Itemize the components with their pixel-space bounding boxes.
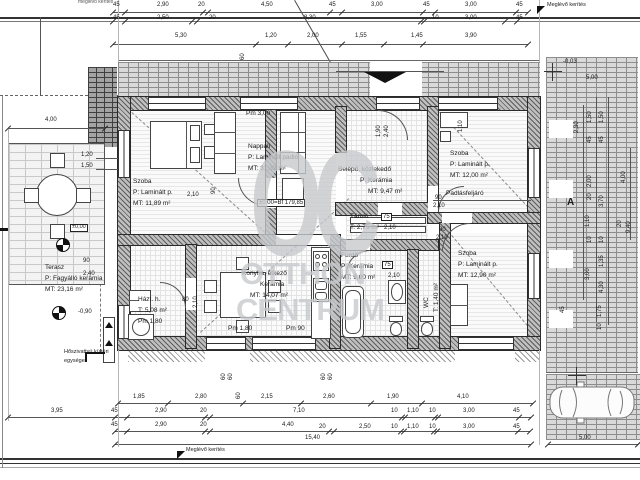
dim-line — [8, 128, 105, 129]
room-floor: P: Kerámia — [341, 261, 375, 272]
entrance-arrow-icon — [364, 72, 406, 83]
dim-line — [115, 431, 530, 432]
dim-label: 1,50 — [81, 163, 93, 169]
room-name: Szoba — [458, 248, 498, 259]
dim-label: 20 — [617, 220, 623, 227]
dim-label: 4,00 — [621, 171, 627, 183]
dim-label: 10 — [429, 424, 436, 430]
dim-label: 90 — [435, 195, 442, 201]
paving-gap — [549, 120, 573, 138]
driveway-edge-line — [546, 372, 638, 373]
survey-cross-icon — [552, 63, 553, 81]
room-label-konyha: Konyha, étkező Kerámia MT: 14,07 m² — [242, 268, 288, 301]
room-label-szoba-b: Szoba P: Laminált p. MT: 12,00 m² — [450, 148, 490, 181]
room-area: MT: 12,90 m² — [458, 270, 498, 281]
dim-label: 60 — [328, 373, 334, 380]
paving-gap — [549, 250, 573, 268]
dim-line — [608, 97, 609, 325]
room-height-nappali: Pm 3,00 — [246, 108, 270, 119]
wall-konyha-furdo — [330, 240, 340, 348]
dim-label: 2,10 — [388, 273, 400, 279]
nightstand — [440, 131, 451, 142]
dim-label: 45 — [560, 306, 566, 313]
chair — [268, 300, 281, 313]
wall-furdo-wc — [408, 250, 418, 348]
section-marker-a: A — [567, 198, 574, 208]
dim-label: 45 — [113, 15, 120, 21]
dim-label: 1,10 — [407, 424, 419, 430]
room-floor: P: Kerámia — [338, 175, 402, 186]
sink-basin — [315, 281, 327, 290]
window-szoba-c-bottom — [458, 337, 514, 350]
fence-top-line — [0, 17, 640, 19]
room-label-tarolo: Tároló T: 2,75 m² — [350, 211, 379, 233]
dim-label: 5,00 — [579, 435, 591, 441]
dim-line — [8, 417, 531, 418]
dim-label: 20 — [200, 408, 207, 414]
dim-label: 4,00 — [45, 117, 57, 123]
dim-label: 10 — [391, 424, 398, 430]
dim-tick — [530, 400, 536, 406]
walkway-gap — [205, 350, 250, 362]
stove-burner — [315, 262, 320, 267]
level-zero-bf-box: ±0,00=Bf 179,85 — [257, 199, 305, 207]
dim-label: 8,30 — [304, 15, 316, 21]
room-name: Tároló — [350, 211, 379, 222]
dim-label: 45 — [599, 136, 605, 143]
dim-label: 45 — [111, 422, 118, 428]
room-height2-konyha: Pm 90 — [286, 323, 305, 334]
dim-label: 10 — [432, 15, 439, 21]
dim-label: 4,10 — [457, 394, 469, 400]
dim-line — [96, 169, 118, 170]
walkway-gap — [455, 350, 515, 362]
dim-line — [113, 44, 528, 45]
dim-line — [583, 105, 584, 300]
level-terrace: -0,90 — [78, 309, 92, 315]
dim-line — [118, 403, 533, 404]
dim-label: 9,40 — [626, 221, 632, 233]
leader-line — [433, 200, 531, 201]
dim-label: 4,50 — [261, 2, 273, 8]
guide-line — [40, 17, 41, 96]
dim-label: 60 — [221, 373, 227, 380]
dim-tick — [525, 9, 531, 15]
fence-bottom-line-2 — [0, 463, 640, 464]
wardrobe-szoba-a — [214, 112, 236, 174]
dim-label: 45 — [513, 408, 520, 414]
dim-tick — [527, 428, 533, 434]
terrace-chair — [50, 224, 65, 239]
dim-label: 3,00 — [465, 15, 477, 21]
dim-label: 60 — [236, 392, 242, 399]
dim-label: 3,00 — [463, 424, 475, 430]
room-label-furdo: Fürdő P: Kerámia MT: 9,00 m² — [341, 250, 375, 283]
terrace-chair — [50, 153, 65, 168]
washbasin-bowl — [391, 283, 403, 301]
guide-line — [8, 128, 9, 421]
room-area: MT: 9,00 m² — [341, 272, 375, 283]
door-gap — [442, 213, 472, 223]
room-floor: P: Laminált p. — [450, 159, 490, 170]
room-height: Pm 1,80 — [138, 316, 167, 327]
dim-label: 1,20 — [265, 33, 277, 39]
dim-label: 2,10 — [436, 235, 448, 241]
dim-label: 2,60 — [323, 394, 335, 400]
dim-label: 1,10 — [585, 215, 591, 227]
wardrobe-line — [450, 305, 468, 306]
survey-cross-icon — [544, 71, 562, 72]
dim-label: 2,10 — [193, 296, 199, 308]
room-name: Belépő, közlekedő — [338, 164, 402, 175]
room-height-konyha: Pm 1,80 — [228, 323, 252, 334]
dim-label: 1,35 — [599, 255, 605, 267]
chair — [204, 280, 217, 293]
window-szoba-c-right — [528, 253, 540, 299]
dim-label: 10 — [587, 236, 593, 243]
terrace-door-bottom — [252, 337, 316, 350]
dim-label: 45 — [423, 2, 430, 8]
pillow — [190, 125, 200, 141]
fence-top-line-2 — [0, 21, 640, 22]
dim-label: 2,90 — [155, 422, 167, 428]
dim-label: 1,90 — [387, 394, 399, 400]
dim-line — [113, 12, 528, 13]
attic-access-label: Padlásfeljáró — [446, 188, 484, 199]
dim-label: 1,20 — [81, 152, 93, 158]
dim-label: 2,00 — [307, 33, 319, 39]
room-name: Fürdő — [341, 250, 375, 261]
fence-flag-bottom-icon — [177, 451, 185, 459]
room-floor: P: Laminált padló — [248, 152, 298, 163]
dim-label: 3,95 — [51, 408, 63, 414]
toilet-bowl — [421, 322, 433, 336]
pillow — [190, 147, 200, 163]
room-area-wc: T: 1,40 m² — [431, 283, 442, 312]
dim-label: 20 — [200, 422, 207, 428]
passage-gap — [276, 235, 330, 245]
window-szoba-b-top — [438, 97, 498, 110]
room-floor: P: Fagyálló kerámia — [45, 273, 102, 284]
guide-line — [118, 0, 119, 62]
dim-label: 5,00 — [586, 75, 598, 81]
room-area: T: 5,08 m² — [138, 305, 167, 316]
room-floor: Kerámia — [242, 279, 288, 290]
dim-label: 2,50 — [359, 424, 371, 430]
fence-flag-top-icon — [537, 6, 545, 14]
room-label-nappali: Nappali P: Laminált padló MT: 31,32 m² — [248, 141, 298, 174]
room-floor: P: Laminált p. — [458, 259, 498, 270]
room-name: Szoba — [133, 176, 173, 187]
chimney — [88, 67, 117, 147]
dim-label: 3,00 — [585, 268, 591, 280]
wall-outer-right — [528, 97, 540, 350]
floor-plan-canvas: Szoba P: Laminált p. MT: 11,89 m² Nappal… — [0, 0, 640, 480]
dim-label: 3,00 — [371, 2, 383, 8]
room-label-hazt: Házt. h. T: 5,08 m² Pm 1,80 — [138, 294, 167, 327]
room-area: MT: 12,00 m² — [450, 170, 490, 181]
dim-label: 10 — [599, 236, 605, 243]
room-label-belepo: Belépő, közlekedő P: Kerámia MT: 9,47 m² — [338, 164, 402, 197]
survey-cross-icon — [568, 375, 586, 376]
dim-label: 20 — [587, 193, 593, 200]
dim-label: 10 — [597, 323, 603, 330]
dim-label: 3,70 — [599, 195, 605, 207]
dim-label: 75 — [382, 261, 393, 269]
room-area: T: 2,75 m² — [350, 222, 379, 233]
dim-label: 10 — [429, 408, 436, 414]
stove-burner — [322, 254, 327, 259]
window-szoba-b-right — [528, 148, 540, 198]
dim-label: 1,10 — [458, 120, 464, 132]
dim-label: 10 — [391, 408, 398, 414]
dim-label: 2,40 — [384, 125, 390, 137]
entrance-door — [376, 97, 420, 110]
level-site: -0,03 — [563, 59, 577, 65]
toilet-bowl — [390, 322, 402, 336]
stove-burner — [315, 254, 320, 259]
dim-label: 1,55 — [355, 33, 367, 39]
dim-label: 1,50 — [599, 111, 605, 123]
dim-label: 4,40 — [282, 422, 294, 428]
level-zero-box: ±0,00 — [70, 224, 88, 232]
dim-label: 1,85 — [133, 394, 145, 400]
dim-label: 45 — [113, 2, 120, 8]
dim-label: 2,90 — [155, 408, 167, 414]
room-area: MT: 31,32 m² — [248, 163, 298, 174]
dim-label: 3,90 — [465, 33, 477, 39]
dim-label: 90 — [211, 187, 217, 194]
dim-label: 2,80 — [195, 394, 207, 400]
dim-label: 2,50 — [157, 15, 169, 21]
dim-label: 2,15 — [261, 394, 273, 400]
wardrobe-line — [214, 132, 236, 133]
porch-edge-line — [118, 60, 540, 61]
fence-label-top: Meglévő kerítés — [547, 3, 586, 9]
heat-pump-label-line1: Hőszivattyú kültéri — [64, 348, 109, 357]
dim-label: 2,90 — [157, 2, 169, 8]
dim-label: 5,30 — [175, 33, 187, 39]
dim-label: 20 — [209, 15, 216, 21]
fence-bottom-line-3 — [0, 467, 640, 468]
terrace-chair — [24, 188, 39, 203]
chair — [204, 300, 217, 313]
room-floor: P: Laminált p. — [133, 187, 173, 198]
dim-label: 1,10 — [407, 408, 419, 414]
room-area: MT: 14,07 m² — [242, 290, 288, 301]
window-konyha-bottom — [206, 337, 246, 350]
dim-label: 2,10 — [187, 192, 199, 198]
dim-label: 90 — [439, 227, 446, 233]
heat-pump-fan-icon — [105, 322, 113, 328]
heat-pump-label-line2: egysége — [64, 357, 109, 366]
fence-bottom-line — [0, 458, 640, 460]
car — [547, 377, 637, 427]
guide-line — [539, 350, 540, 445]
dim-label: 1,75 — [597, 305, 603, 317]
dim-label: 2,10 — [433, 203, 445, 209]
dim-label: 2,10 — [384, 225, 396, 231]
room-label-terasz: Terasz P: Fagyálló kerámia MT: 23,16 m² — [45, 262, 102, 295]
dim-label: 20 — [198, 2, 205, 8]
dim-label: 80 — [182, 297, 189, 303]
benchmark-icon — [56, 238, 70, 252]
sofa-line — [280, 132, 306, 133]
dim-label: 45 — [587, 136, 593, 143]
front-porch-paving — [118, 62, 540, 97]
terrace-table — [36, 174, 78, 216]
survey-cross-icon — [576, 367, 577, 385]
stove-burner — [322, 262, 327, 267]
window-szoba-a-left — [118, 130, 130, 178]
dim-label: 60 — [228, 373, 234, 380]
dim-label: 2,00 — [587, 175, 593, 187]
guide-line — [118, 350, 119, 447]
dim-label: 45 — [513, 424, 520, 430]
dim-label: 2,30 — [574, 121, 580, 133]
wall-nappali-belepo — [336, 107, 346, 152]
window-szoba-a-top — [148, 97, 206, 110]
room-name: Konyha, étkező — [242, 268, 288, 279]
dim-label: 4,30 — [599, 281, 605, 293]
sink-basin — [315, 292, 327, 300]
dim-tick — [635, 441, 640, 447]
room-name: Nappali — [248, 141, 298, 152]
dim-line — [548, 444, 638, 445]
bed-line — [186, 122, 187, 168]
door-gap — [346, 240, 370, 250]
dim-label: 1,50 — [587, 111, 593, 123]
dim-tick — [528, 414, 534, 420]
fence-label-bottom: Meglévő kerítés — [186, 448, 225, 454]
dim-line — [96, 158, 118, 159]
benchmark-icon — [52, 306, 66, 320]
dim-label: 60 — [240, 53, 246, 60]
fence-label-topleft: meglévő kerítés — [78, 0, 113, 5]
room-label-szoba-a: Szoba P: Laminált p. MT: 11,89 m² — [133, 176, 173, 209]
dim-label: 1,90 — [376, 125, 382, 137]
dim-label: 3,00 — [465, 2, 477, 8]
dim-label: 45 — [516, 2, 523, 8]
room-area: MT: 23,16 m² — [45, 284, 102, 295]
room-label-szoba-c: Szoba P: Laminált p. MT: 12,90 m² — [458, 248, 498, 281]
dim-label: 75 — [381, 213, 392, 221]
terrace-chair — [76, 188, 91, 203]
paving-gap — [549, 180, 573, 198]
dim-label: 1,45 — [411, 33, 423, 39]
dim-label: 7,10 — [293, 408, 305, 414]
dim-label: 3,00 — [463, 408, 475, 414]
dim-label: 45 — [329, 2, 336, 8]
dim-tick — [528, 441, 534, 447]
room-name: Terasz — [45, 262, 102, 273]
dim-tick — [525, 41, 531, 47]
bathtub-inner — [345, 290, 361, 334]
wardrobe-line — [214, 153, 236, 154]
property-line-left — [2, 96, 3, 468]
dim-label: 45 — [516, 15, 523, 21]
dim-line — [115, 444, 531, 445]
room-area: MT: 9,47 m² — [338, 186, 402, 197]
dim-label: 45 — [111, 408, 118, 414]
room-name: Házt. h. — [138, 294, 167, 305]
heat-pump-fan-icon — [105, 340, 113, 346]
heat-pump-label: Hőszivattyú kültéri egysége — [64, 348, 109, 366]
dim-label: 20 — [319, 424, 326, 430]
dim-line — [596, 97, 597, 322]
dim-label: 15,40 — [305, 435, 320, 441]
dim-label: 60 — [321, 373, 327, 380]
room-area: MT: 11,89 m² — [133, 198, 173, 209]
room-name: Szoba — [450, 148, 490, 159]
